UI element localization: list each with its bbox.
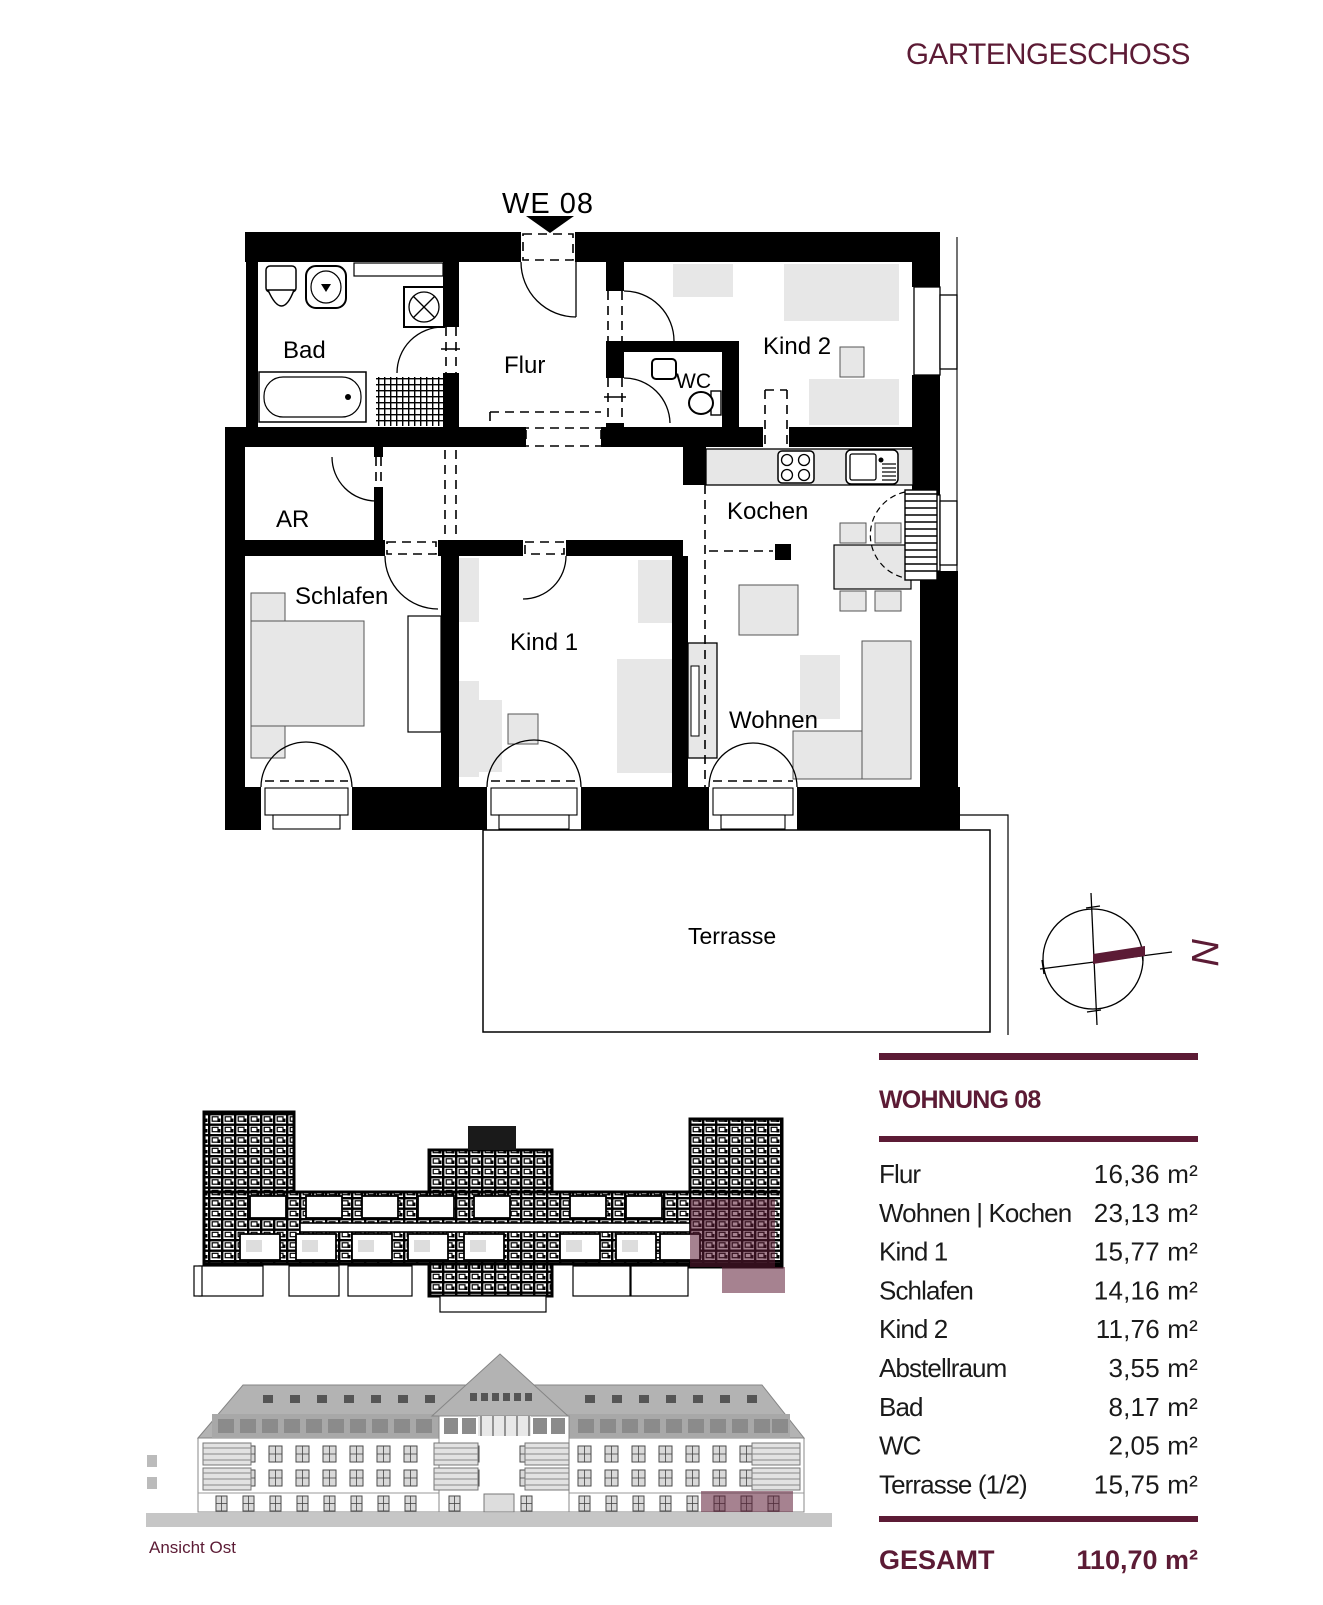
svg-text:Schlafen: Schlafen [879,1275,973,1305]
svg-text:Kind 1: Kind 1 [879,1237,948,1267]
svg-text:3,55 m²: 3,55 m² [1108,1353,1198,1383]
svg-text:23,13 m²: 23,13 m² [1094,1198,1198,1228]
svg-text:15,77 m²: 15,77 m² [1094,1237,1198,1267]
svg-text:Flur: Flur [504,352,545,379]
svg-text:Wohnen | Kochen: Wohnen | Kochen [879,1198,1071,1228]
svg-text:Kochen: Kochen [727,498,808,525]
svg-text:Schlafen: Schlafen [295,583,388,610]
svg-text:Terrasse (1/2): Terrasse (1/2) [879,1469,1027,1499]
svg-text:N: N [1183,938,1225,966]
svg-text:Ansicht Ost: Ansicht Ost [149,1538,236,1557]
svg-text:Terrasse: Terrasse [688,923,776,949]
svg-text:WC: WC [879,1431,921,1461]
svg-text:110,70 m²: 110,70 m² [1076,1545,1198,1575]
svg-text:Kind 2: Kind 2 [763,333,831,360]
svg-text:WE 08: WE 08 [502,188,594,220]
svg-text:11,76 m²: 11,76 m² [1096,1314,1198,1344]
svg-text:Abstellraum: Abstellraum [879,1353,1006,1383]
svg-text:WC: WC [676,370,711,393]
svg-text:Bad: Bad [879,1392,923,1422]
svg-text:2,05 m²: 2,05 m² [1108,1431,1198,1461]
svg-text:16,36 m²: 16,36 m² [1094,1159,1198,1189]
svg-text:Flur: Flur [879,1159,921,1189]
svg-text:8,17 m²: 8,17 m² [1108,1392,1198,1422]
svg-text:Kind 1: Kind 1 [510,629,578,656]
svg-text:WOHNUNG 08: WOHNUNG 08 [879,1086,1041,1114]
svg-text:15,75 m²: 15,75 m² [1094,1469,1198,1499]
svg-text:14,16 m²: 14,16 m² [1094,1275,1198,1305]
svg-text:Wohnen: Wohnen [729,707,818,734]
svg-text:Bad: Bad [283,337,326,364]
svg-text:AR: AR [276,506,309,533]
svg-text:GESAMT: GESAMT [879,1545,995,1575]
svg-text:GARTENGESCHOSS: GARTENGESCHOSS [906,38,1190,71]
svg-text:Kind 2: Kind 2 [879,1314,948,1344]
